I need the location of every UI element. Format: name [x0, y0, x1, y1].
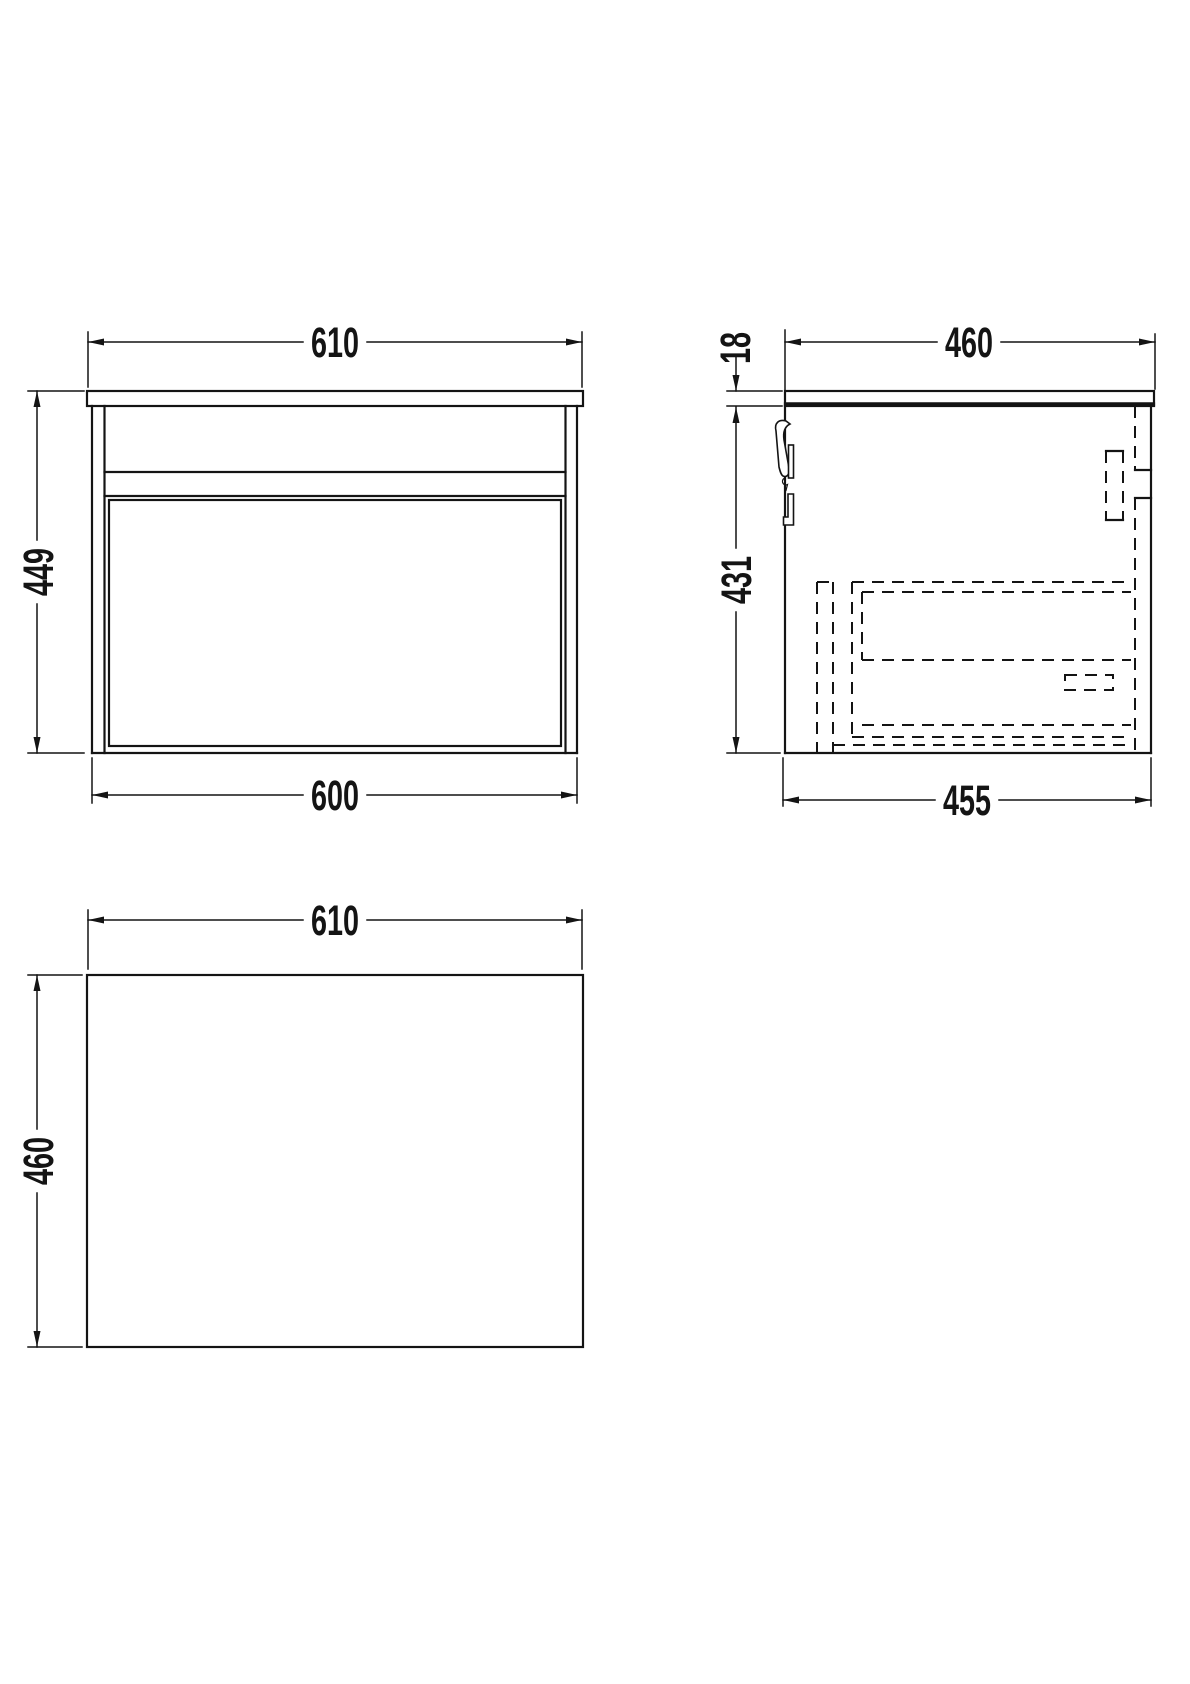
dim-label-side-depth-bottom: 455 [943, 777, 991, 825]
drawing-background [0, 0, 1190, 1684]
dim-label-side-height: 431 [713, 556, 761, 604]
dim-label-front-height: 449 [15, 548, 63, 596]
wall-bracket-rail-upper [789, 445, 794, 478]
dim-label-side-depth-top: 460 [945, 319, 993, 367]
dim-label-front-width-top: 610 [311, 319, 359, 367]
dim-label-plan-depth: 460 [15, 1137, 63, 1185]
dim-label-front-width-bottom: 600 [311, 772, 359, 820]
technical-drawing: 610 449 600 [0, 0, 1190, 1684]
drawing-canvas: 610 449 600 [0, 0, 1190, 1684]
dim-label-plan-width: 610 [311, 897, 359, 945]
dim-label-side-worktop-thickness: 18 [712, 332, 760, 364]
